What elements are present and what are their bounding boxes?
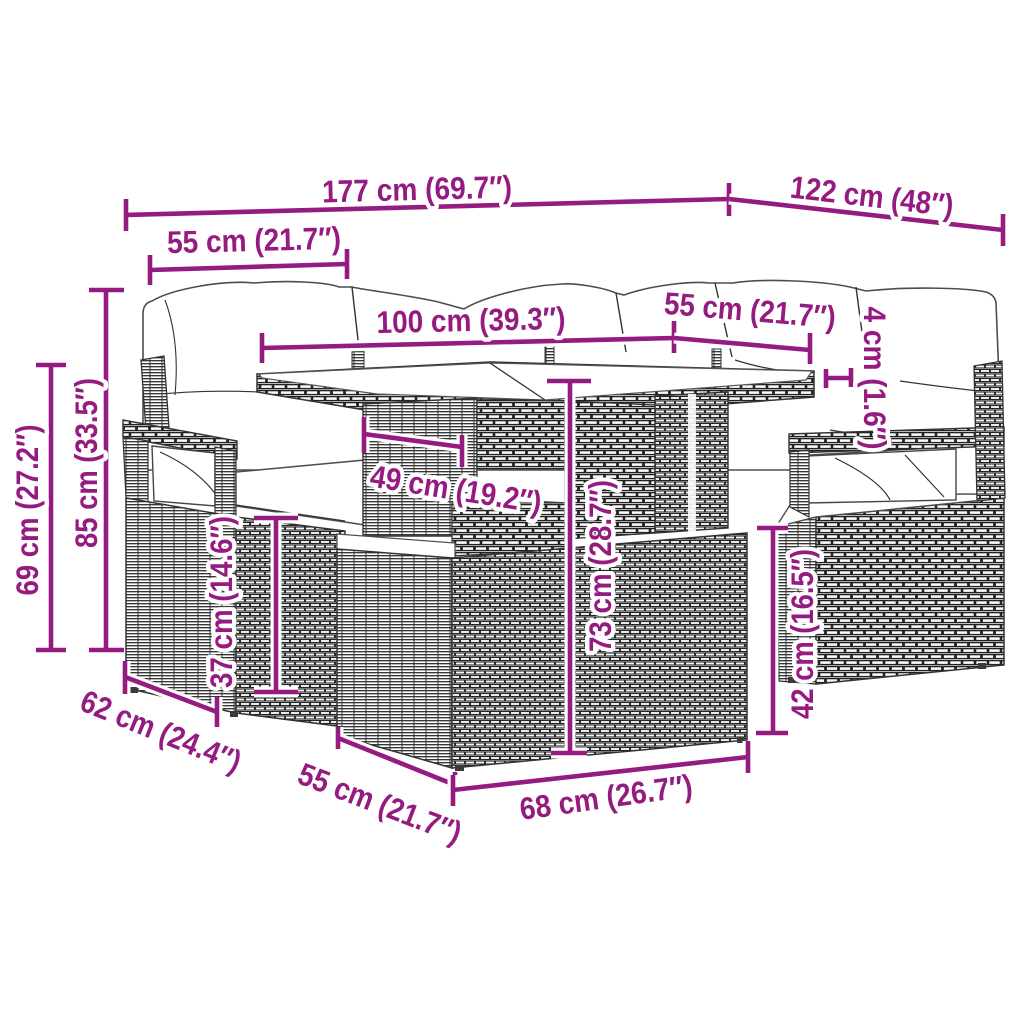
svg-text:4 cm (1.6″): 4 cm (1.6″) [857, 307, 893, 450]
svg-text:42 cm (16.5″): 42 cm (16.5″) [784, 549, 820, 719]
svg-text:69 cm (27.2″): 69 cm (27.2″) [9, 425, 45, 596]
svg-text:85 cm (33.5″): 85 cm (33.5″) [68, 378, 104, 548]
svg-text:100 cm (39.3″): 100 cm (39.3″) [376, 300, 566, 340]
svg-text:177 cm (69.7″): 177 cm (69.7″) [322, 169, 513, 210]
svg-text:37 cm (14.6″): 37 cm (14.6″) [203, 516, 239, 688]
svg-text:73 cm (28.7″): 73 cm (28.7″) [582, 480, 618, 652]
svg-text:55 cm (21.7″): 55 cm (21.7″) [167, 220, 342, 261]
